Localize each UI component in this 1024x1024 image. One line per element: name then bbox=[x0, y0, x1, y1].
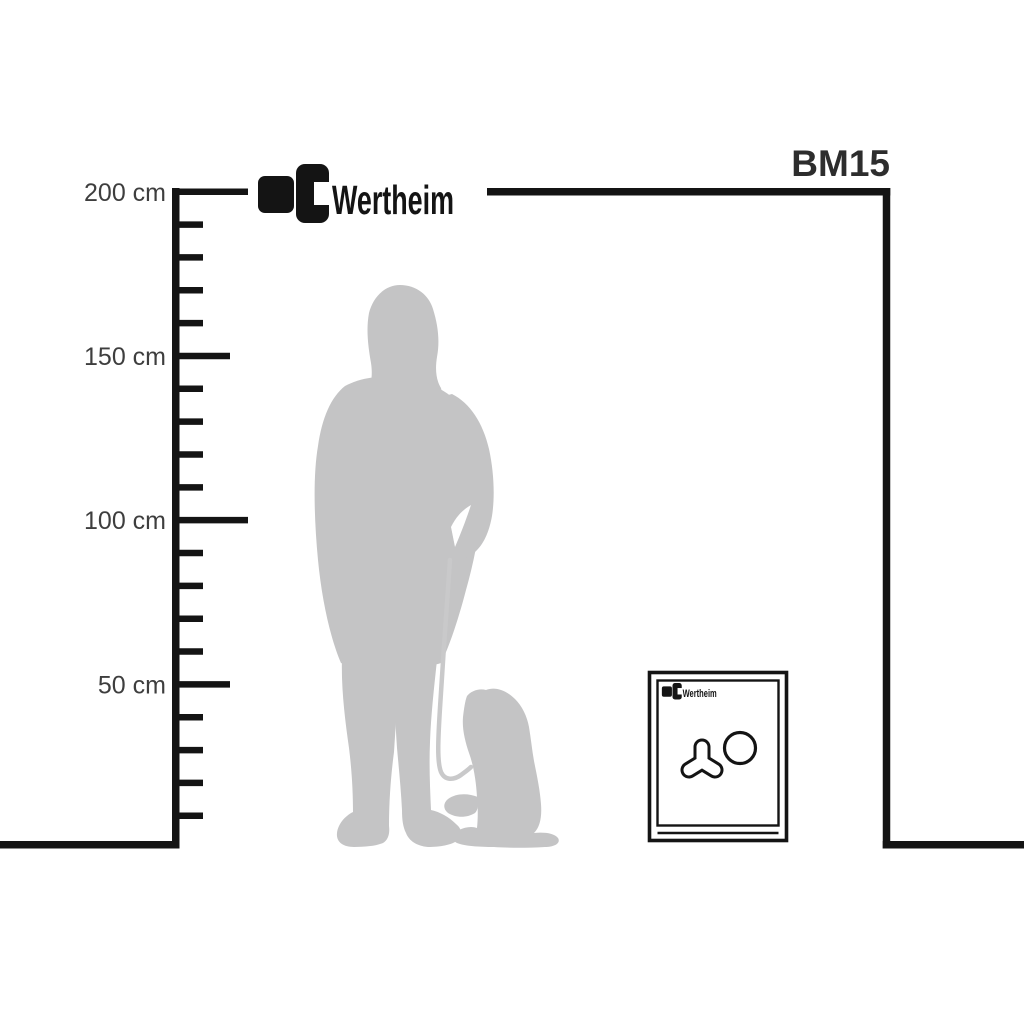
height-ruler: 200 cm150 cm100 cm50 cm bbox=[84, 179, 248, 849]
ruler-label-100: 100 cm bbox=[84, 507, 166, 535]
safe-outer-body bbox=[650, 673, 787, 841]
ruler-ticks bbox=[173, 192, 248, 816]
safe-dial bbox=[725, 733, 756, 764]
ruler-label-150: 150 cm bbox=[84, 343, 166, 371]
dog-silhouette bbox=[444, 689, 559, 848]
person-left-leg bbox=[337, 658, 398, 847]
ruler-label-50: 50 cm bbox=[98, 671, 166, 699]
dog-tail bbox=[444, 794, 478, 817]
ruler-label-200: 200 cm bbox=[84, 179, 166, 207]
ruler-labels: 200 cm150 cm100 cm50 cm bbox=[84, 179, 166, 700]
brand-logo bbox=[258, 164, 454, 223]
safe bbox=[650, 673, 787, 841]
person-right-leg bbox=[394, 660, 461, 847]
model-label: BM15 bbox=[791, 143, 890, 184]
size-comparison-diagram: Wertheim 200 cm150 cm100 cm50 cm BM15 bbox=[0, 0, 1024, 1024]
person-silhouette bbox=[315, 285, 494, 847]
